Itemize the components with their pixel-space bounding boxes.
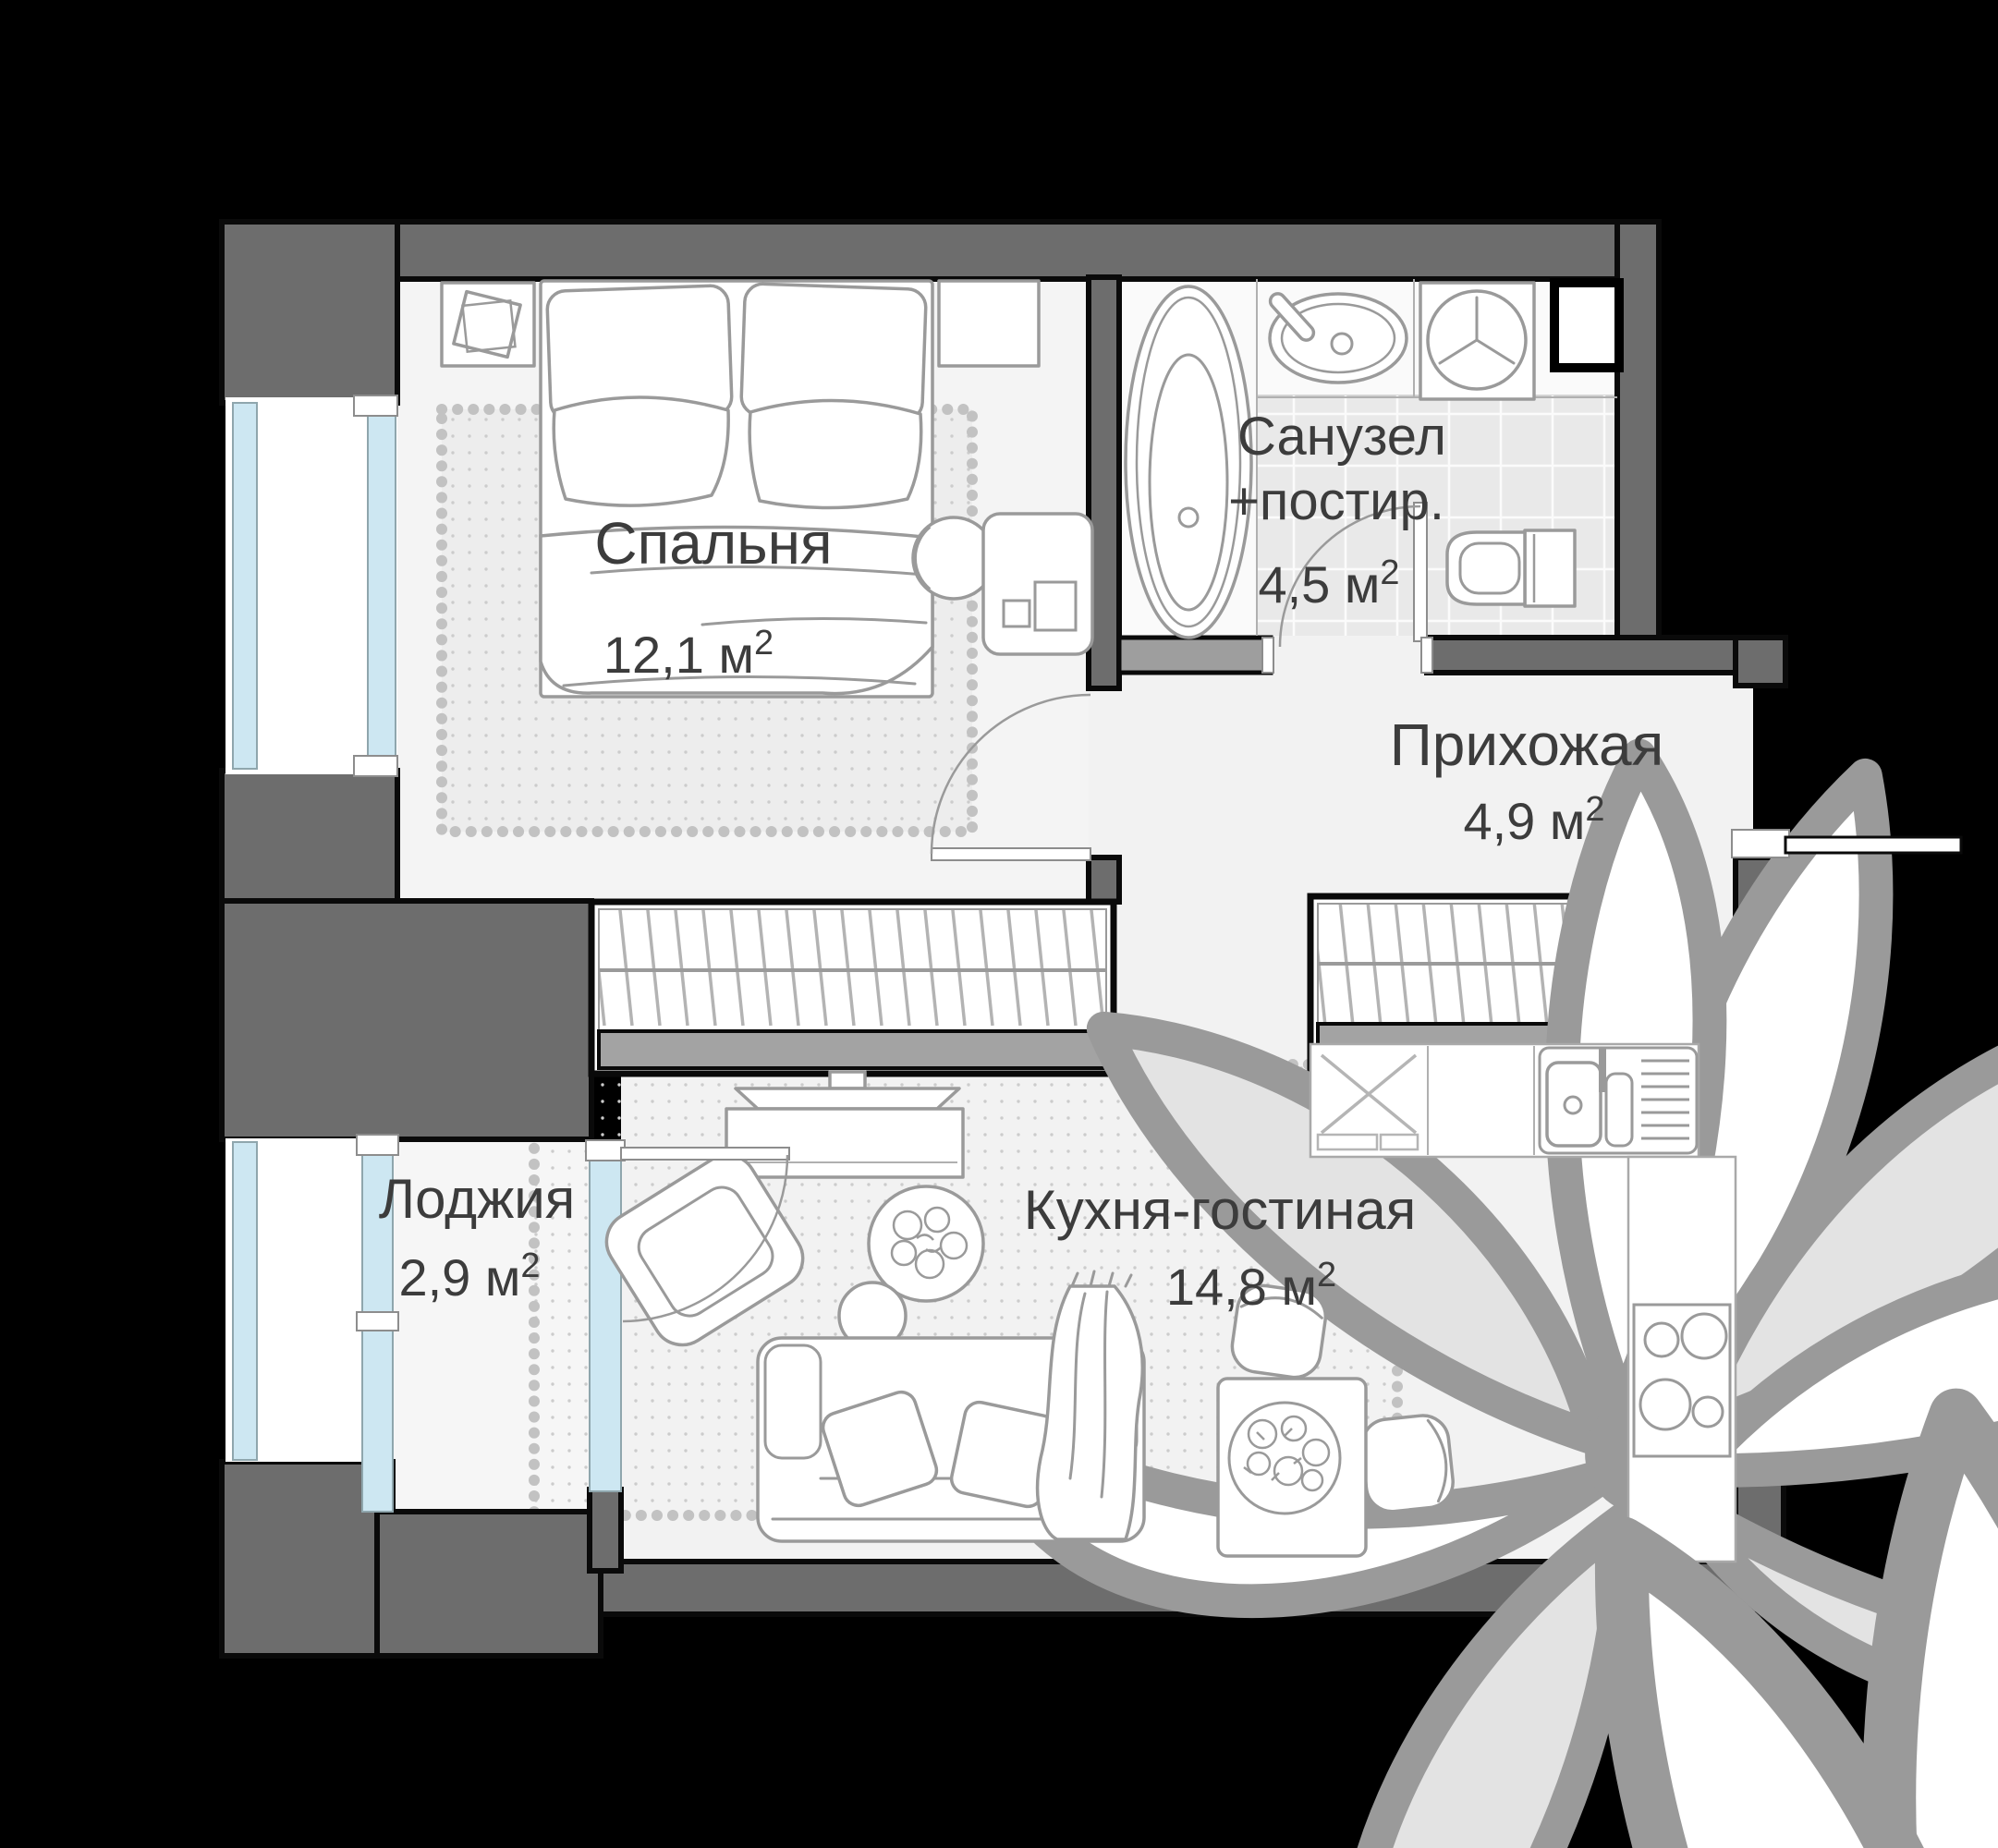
wardrobe-band — [599, 1031, 1106, 1068]
kitchen-living-area: 14,8 м2 — [1166, 1256, 1336, 1316]
wall-left-mid — [222, 771, 397, 902]
kitchen-counter-right — [1628, 1157, 1736, 1562]
kitchen-living-label: Кухня-гостиная — [1024, 1179, 1416, 1241]
door-leaf — [1785, 837, 1961, 853]
tv-bracket — [830, 1072, 865, 1088]
hallway-label: Прихожая — [1390, 711, 1664, 778]
bedroom-area: 12,1 м2 — [603, 624, 774, 684]
wall-left-upper — [222, 222, 397, 403]
desk-icon — [983, 514, 1092, 654]
tv-unit — [726, 1072, 963, 1177]
loggia-partition-glazing — [586, 1140, 625, 1491]
bathroom-label-2: +постир. — [1228, 471, 1444, 531]
pillow — [749, 400, 921, 507]
bedroom-door-opening — [1089, 686, 1119, 861]
washbasin-icon — [1267, 291, 1407, 383]
bathroom-label: Санузел — [1237, 407, 1446, 467]
floor-plan-page: Спальня 12,1 м2 Санузел +постир. 4,5 м2 … — [0, 0, 1998, 1848]
bathroom-door-opening — [1268, 636, 1427, 676]
kitchen-counter-top — [1310, 1044, 1699, 1157]
nightstand-right — [939, 281, 1039, 366]
dining-chair — [1359, 1413, 1456, 1514]
bathtub-icon — [1126, 286, 1251, 638]
entry-threshold — [1732, 830, 1789, 857]
loggia-label: Лоджия — [379, 1168, 576, 1230]
wall-entry-above-door — [1736, 638, 1785, 686]
dining-table-icon — [1218, 1379, 1366, 1556]
bathroom-area: 4,5 м2 — [1258, 553, 1399, 614]
bedroom-wardrobe — [591, 902, 1114, 1074]
tv-icon — [736, 1088, 959, 1109]
faucet — [1599, 1048, 1606, 1092]
wall-loggia-east-stub — [590, 1489, 621, 1571]
nightstand-left — [442, 283, 534, 366]
bedroom-label: Спальня — [594, 510, 832, 577]
wall-top — [222, 222, 1656, 279]
window-inner-glass — [368, 403, 396, 769]
door-leaf — [621, 1148, 789, 1160]
window-outer-glass — [233, 403, 257, 769]
wall-bathroom-south-left — [1119, 638, 1271, 673]
window-sill-top — [354, 395, 397, 416]
washing-machine-icon — [1420, 283, 1534, 399]
tv-console — [726, 1109, 963, 1177]
toilet-icon — [1447, 530, 1575, 606]
loggia-glazing-west — [225, 1135, 398, 1512]
door-jamb — [1262, 638, 1273, 673]
floor-plan-canvas: Спальня 12,1 м2 Санузел +постир. 4,5 м2 … — [0, 0, 1998, 1848]
loggia-area: 2,9 м2 — [398, 1246, 540, 1307]
vent-duct-bathroom — [1554, 283, 1619, 368]
hallway-area: 4,9 м2 — [1463, 790, 1604, 850]
wall-bathroom-south-right — [1427, 638, 1785, 673]
door-jamb — [1421, 638, 1432, 673]
bedroom-window — [225, 395, 397, 776]
wall-bedroom-door-stub — [1089, 857, 1119, 902]
wall-loggia-south — [377, 1512, 601, 1656]
door-leaf — [932, 848, 1090, 860]
window-sill-bottom — [354, 756, 397, 776]
wall-loggia-top-chunk — [222, 901, 591, 1139]
pillow — [554, 397, 728, 505]
